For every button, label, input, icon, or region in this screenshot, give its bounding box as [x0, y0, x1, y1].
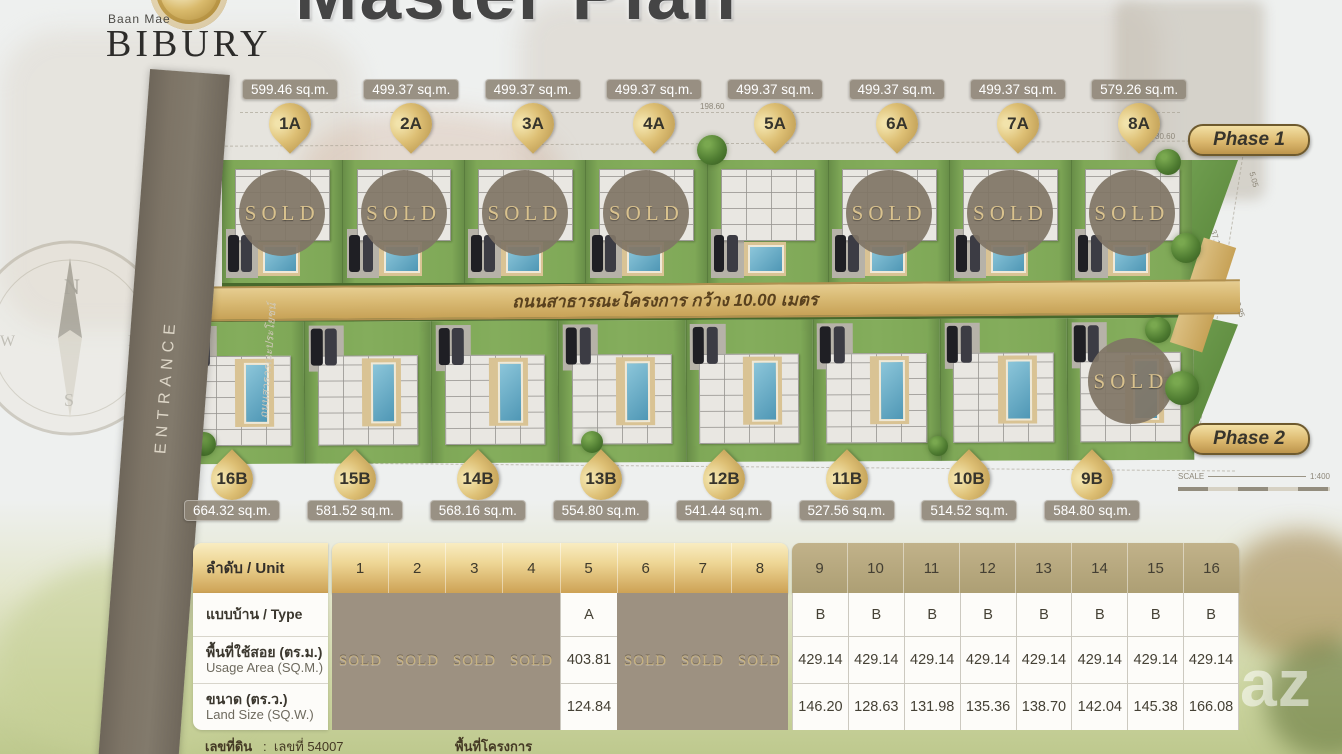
column-header-16: 16: [1183, 543, 1239, 593]
lot-12B: [685, 319, 813, 462]
table-column-13: B429.14138.70: [1016, 593, 1072, 730]
column-header-11: 11: [903, 543, 959, 593]
background-autumn-tree: [1225, 530, 1342, 660]
car: [471, 235, 482, 272]
lot-15B: [304, 321, 432, 464]
table-sold-text: SOLD: [389, 638, 446, 684]
table-sold-text: SOLD: [446, 638, 503, 684]
swimming-pool: [879, 360, 905, 421]
table-column-2-sold: SOLD: [389, 593, 446, 730]
dimension-number: 5.05: [1247, 171, 1260, 188]
lot-3A: SOLD: [464, 160, 585, 283]
survey-line: [225, 140, 1245, 146]
usage-area-value: 429.14: [904, 636, 960, 683]
unit-pin-label: 8A: [1118, 103, 1160, 145]
tree: [928, 436, 948, 456]
scale-ruler: [1178, 487, 1330, 491]
house-floorplan: [721, 169, 816, 241]
car: [693, 327, 705, 364]
lot-8A: SOLD: [1071, 160, 1192, 283]
table-sold-text: SOLD: [731, 638, 788, 684]
unit-area-label: 499.37 sq.m.: [485, 79, 581, 100]
swimming-pool: [625, 361, 651, 422]
project-area-label: พื้นที่โครงการ: [455, 739, 532, 754]
table-label-column: ลำดับ / Unit แบบบ้าน / Type พื้นที่ใช้สอ…: [193, 543, 328, 730]
row-label-land-en: Land Size (SQ.W.): [206, 708, 328, 723]
dimension-number: 198.60: [700, 102, 724, 111]
land-size-value: 142.04: [1071, 683, 1127, 730]
svg-text:N: N: [64, 274, 80, 299]
entrance-label: ENTRANCE: [152, 318, 180, 455]
unit-area-label: 499.37 sq.m.: [970, 79, 1066, 100]
table-unit-header: ลำดับ / Unit: [193, 543, 328, 593]
page-title: Master Plan: [295, 0, 765, 34]
row-label-land-th: ขนาด (ตร.ว.): [206, 691, 328, 707]
scale-line: [1208, 476, 1306, 477]
lot-13B: [558, 320, 686, 463]
table-column-14: B429.14142.04: [1071, 593, 1127, 730]
table-units-1-8: 12345678 SOLDSOLDSOLDSOLDA403.81124.84SO…: [332, 543, 788, 730]
table-column-8-sold: SOLD: [731, 593, 788, 730]
usage-area-value: 429.14: [792, 636, 848, 683]
table-sold-text: SOLD: [332, 638, 389, 684]
scale-bar: SCALE 1:400: [1178, 472, 1330, 491]
type-value: B: [792, 593, 848, 636]
type-value: B: [960, 593, 1016, 636]
tree: [581, 431, 603, 453]
land-deed-value: เลขที่ 54007: [274, 739, 344, 754]
swimming-pool: [498, 362, 524, 423]
column-header-1: 1: [332, 543, 388, 593]
unit-area-label: 584.80 sq.m.: [1044, 500, 1140, 521]
land-deed-note: เลขที่ดิน : เลขที่ 54007: [205, 736, 344, 754]
svg-text:W: W: [0, 333, 16, 350]
usage-area-value: 429.14: [1071, 636, 1127, 683]
brand-logo: Baan Mae BIBURY: [100, 0, 360, 70]
car: [727, 235, 738, 272]
swimming-pool: [371, 362, 397, 423]
project-name: BIBURY: [106, 22, 271, 66]
tree: [1171, 233, 1201, 263]
sold-badge: SOLD: [603, 170, 689, 256]
survey-line: [240, 112, 1180, 113]
car: [706, 327, 718, 364]
column-header-15: 15: [1127, 543, 1183, 593]
row-label-land: ขนาด (ตร.ว.) Land Size (SQ.W.): [193, 683, 328, 730]
table-column-12: B429.14135.36: [960, 593, 1016, 730]
column-header-3: 3: [445, 543, 502, 593]
usage-area-value: 429.14: [848, 636, 904, 683]
project-area-note: พื้นที่โครงการ: [455, 736, 532, 754]
page-title-clip: Master Plan: [295, 0, 765, 34]
phase1-badge: Phase 1: [1188, 124, 1310, 156]
unit-area-label: 527.56 sq.m.: [798, 500, 894, 521]
unit-area-label: 499.37 sq.m.: [727, 79, 823, 100]
scale-label: SCALE: [1178, 472, 1204, 481]
table-column-16: B429.14166.08: [1183, 593, 1239, 730]
lot-14B: [431, 321, 559, 464]
table-column-7-sold: SOLD: [674, 593, 731, 730]
unit-tables: ลำดับ / Unit แบบบ้าน / Type พื้นที่ใช้สอ…: [193, 543, 1240, 730]
column-header-7: 7: [674, 543, 731, 593]
unit-pin-6A: 6A: [867, 94, 926, 153]
unit-pin-label: 6A: [876, 103, 918, 145]
car: [349, 235, 360, 272]
unit-area-label: 579.26 sq.m.: [1091, 79, 1187, 100]
unit-pin-label: 7A: [997, 103, 1039, 145]
tree: [1145, 317, 1171, 343]
type-value: B: [848, 593, 904, 636]
table-column-10: B429.14128.63: [848, 593, 904, 730]
unit-area-label: 568.16 sq.m.: [430, 500, 526, 521]
unit-area-label: 514.52 sq.m.: [921, 500, 1017, 521]
unit-pin-label: 9B: [1071, 458, 1113, 500]
sold-badge: SOLD: [482, 170, 568, 256]
tree: [697, 135, 727, 165]
project-road: ถนนสาธารณะโครงการ กว้าง 10.00 เมตร: [180, 279, 1240, 321]
land-size-value: 146.20: [792, 683, 848, 730]
scale-ratio: 1:400: [1310, 472, 1330, 481]
swimming-pool: [748, 245, 783, 274]
phase1-strip: SOLDSOLDSOLDSOLDSOLDSOLDSOLD: [222, 160, 1192, 288]
land-size-value: 138.70: [1016, 683, 1072, 730]
lot-10B: [939, 318, 1067, 461]
table-sold-text: SOLD: [503, 638, 560, 684]
type-value: B: [1071, 593, 1127, 636]
car: [820, 326, 832, 363]
unit-area-label: 499.37 sq.m.: [363, 79, 459, 100]
car: [579, 328, 591, 365]
land-size-value: 145.38: [1127, 683, 1183, 730]
table-column-5: A403.81124.84: [560, 593, 617, 730]
usage-area-value: 403.81: [560, 636, 617, 683]
column-header-4: 4: [502, 543, 559, 593]
watermark: az: [1240, 645, 1312, 721]
land-size-value: 128.63: [848, 683, 904, 730]
unit-pin-label: 2A: [390, 103, 432, 145]
column-header-13: 13: [1015, 543, 1071, 593]
unit-pin-label: 15B: [334, 458, 376, 500]
column-header-12: 12: [959, 543, 1015, 593]
row-label-type-text: แบบบ้าน / Type: [206, 606, 328, 622]
car: [947, 326, 959, 363]
unit-pin-label: 4A: [633, 103, 675, 145]
lot-4A: SOLD: [585, 160, 706, 283]
land-size-value: 166.08: [1183, 683, 1239, 730]
sold-badge: SOLD: [1089, 170, 1175, 256]
column-header-6: 6: [617, 543, 674, 593]
usage-area-value: 429.14: [1016, 636, 1072, 683]
swimming-pool: [1006, 360, 1032, 421]
row-label-usage-en: Usage Area (SQ.M.): [206, 661, 328, 676]
sold-badge: SOLD: [1088, 338, 1174, 424]
unit-area-label: 499.37 sq.m.: [606, 79, 702, 100]
unit-area-label: 664.32 sq.m.: [184, 500, 280, 521]
lot-2A: SOLD: [342, 160, 463, 283]
tree: [1165, 371, 1199, 405]
car: [835, 235, 846, 272]
unit-pin-7A: 7A: [988, 94, 1047, 153]
unit-pin-4A: 4A: [624, 94, 683, 153]
table-column-3-sold: SOLD: [446, 593, 503, 730]
type-value: B: [1127, 593, 1183, 636]
land-deed-separator: :: [263, 739, 267, 754]
table-column-6-sold: SOLD: [617, 593, 674, 730]
row-label-usage-th: พื้นที่ใช้สอย (ตร.ม.): [206, 644, 328, 660]
column-header-10: 10: [847, 543, 903, 593]
car: [452, 328, 464, 365]
unit-pin-label: 11B: [826, 458, 868, 500]
phase2-strip: SOLD: [178, 313, 1195, 464]
dimension-number: 30.60: [1155, 132, 1175, 141]
unit-pin-5A: 5A: [745, 94, 804, 153]
car: [714, 235, 725, 272]
column-header-8: 8: [731, 543, 788, 593]
type-value: B: [904, 593, 960, 636]
row-label-usage: พื้นที่ใช้สอย (ตร.ม.) Usage Area (SQ.M.): [193, 636, 328, 683]
lot-6A: SOLD: [828, 160, 949, 283]
land-deed-label: เลขที่ดิน: [205, 739, 252, 754]
svg-text:S: S: [64, 390, 74, 410]
project-road-label: ถนนสาธารณะโครงการ กว้าง 10.00 เมตร: [512, 286, 818, 315]
car: [1074, 325, 1086, 362]
unit-pin-label: 3A: [512, 103, 554, 145]
usage-area-value: 429.14: [1183, 636, 1239, 683]
car: [1078, 235, 1089, 272]
car: [565, 328, 577, 365]
tree: [1155, 149, 1181, 175]
column-header-5: 5: [560, 543, 617, 593]
table-column-15: B429.14145.38: [1127, 593, 1183, 730]
car: [834, 326, 846, 363]
unit-pin-label: 5A: [754, 103, 796, 145]
land-size-value: 131.98: [904, 683, 960, 730]
car: [961, 326, 973, 363]
usage-area-value: 429.14: [1127, 636, 1183, 683]
table-column-4-sold: SOLD: [503, 593, 560, 730]
table-units-9-16: 910111213141516 B429.14146.20B429.14128.…: [792, 543, 1239, 730]
car: [438, 328, 450, 365]
unit-area-label: 554.80 sq.m.: [553, 500, 649, 521]
unit-pin-label: 10B: [948, 458, 990, 500]
unit-pin-8A: 8A: [1109, 94, 1168, 153]
row-label-type: แบบบ้าน / Type: [193, 593, 328, 636]
lot-7A: SOLD: [949, 160, 1070, 283]
car: [592, 235, 603, 272]
column-header-9: 9: [792, 543, 847, 593]
lot-5A: [707, 160, 828, 283]
land-size-value: 124.84: [560, 683, 617, 730]
unit-area-label: 499.37 sq.m.: [848, 79, 944, 100]
column-header-14: 14: [1071, 543, 1127, 593]
type-value: B: [1183, 593, 1239, 636]
sold-badge: SOLD: [361, 170, 447, 256]
lot-11B: [812, 319, 940, 462]
master-plan-poster: N S W E Baan Mae BIBURY Master Plan SOLD…: [0, 0, 1342, 754]
column-header-2: 2: [388, 543, 445, 593]
swimming-pool: [752, 361, 778, 422]
usage-area-value: 429.14: [960, 636, 1016, 683]
type-value: A: [560, 593, 617, 636]
car: [228, 235, 239, 272]
table-column-11: B429.14131.98: [904, 593, 960, 730]
table-column-1-sold: SOLD: [332, 593, 389, 730]
sold-badge: SOLD: [846, 170, 932, 256]
table-column-9: B429.14146.20: [792, 593, 848, 730]
table-sold-text: SOLD: [674, 638, 731, 684]
car: [956, 235, 967, 272]
car: [325, 329, 337, 366]
phase2-badge: Phase 2: [1188, 423, 1310, 455]
type-value: B: [1016, 593, 1072, 636]
unit-pin-label: 16B: [211, 458, 253, 500]
sold-badge: SOLD: [967, 170, 1053, 256]
land-size-value: 135.36: [960, 683, 1016, 730]
car: [311, 329, 323, 366]
table-sold-text: SOLD: [617, 638, 674, 684]
unit-area-label: 581.52 sq.m.: [307, 500, 403, 521]
